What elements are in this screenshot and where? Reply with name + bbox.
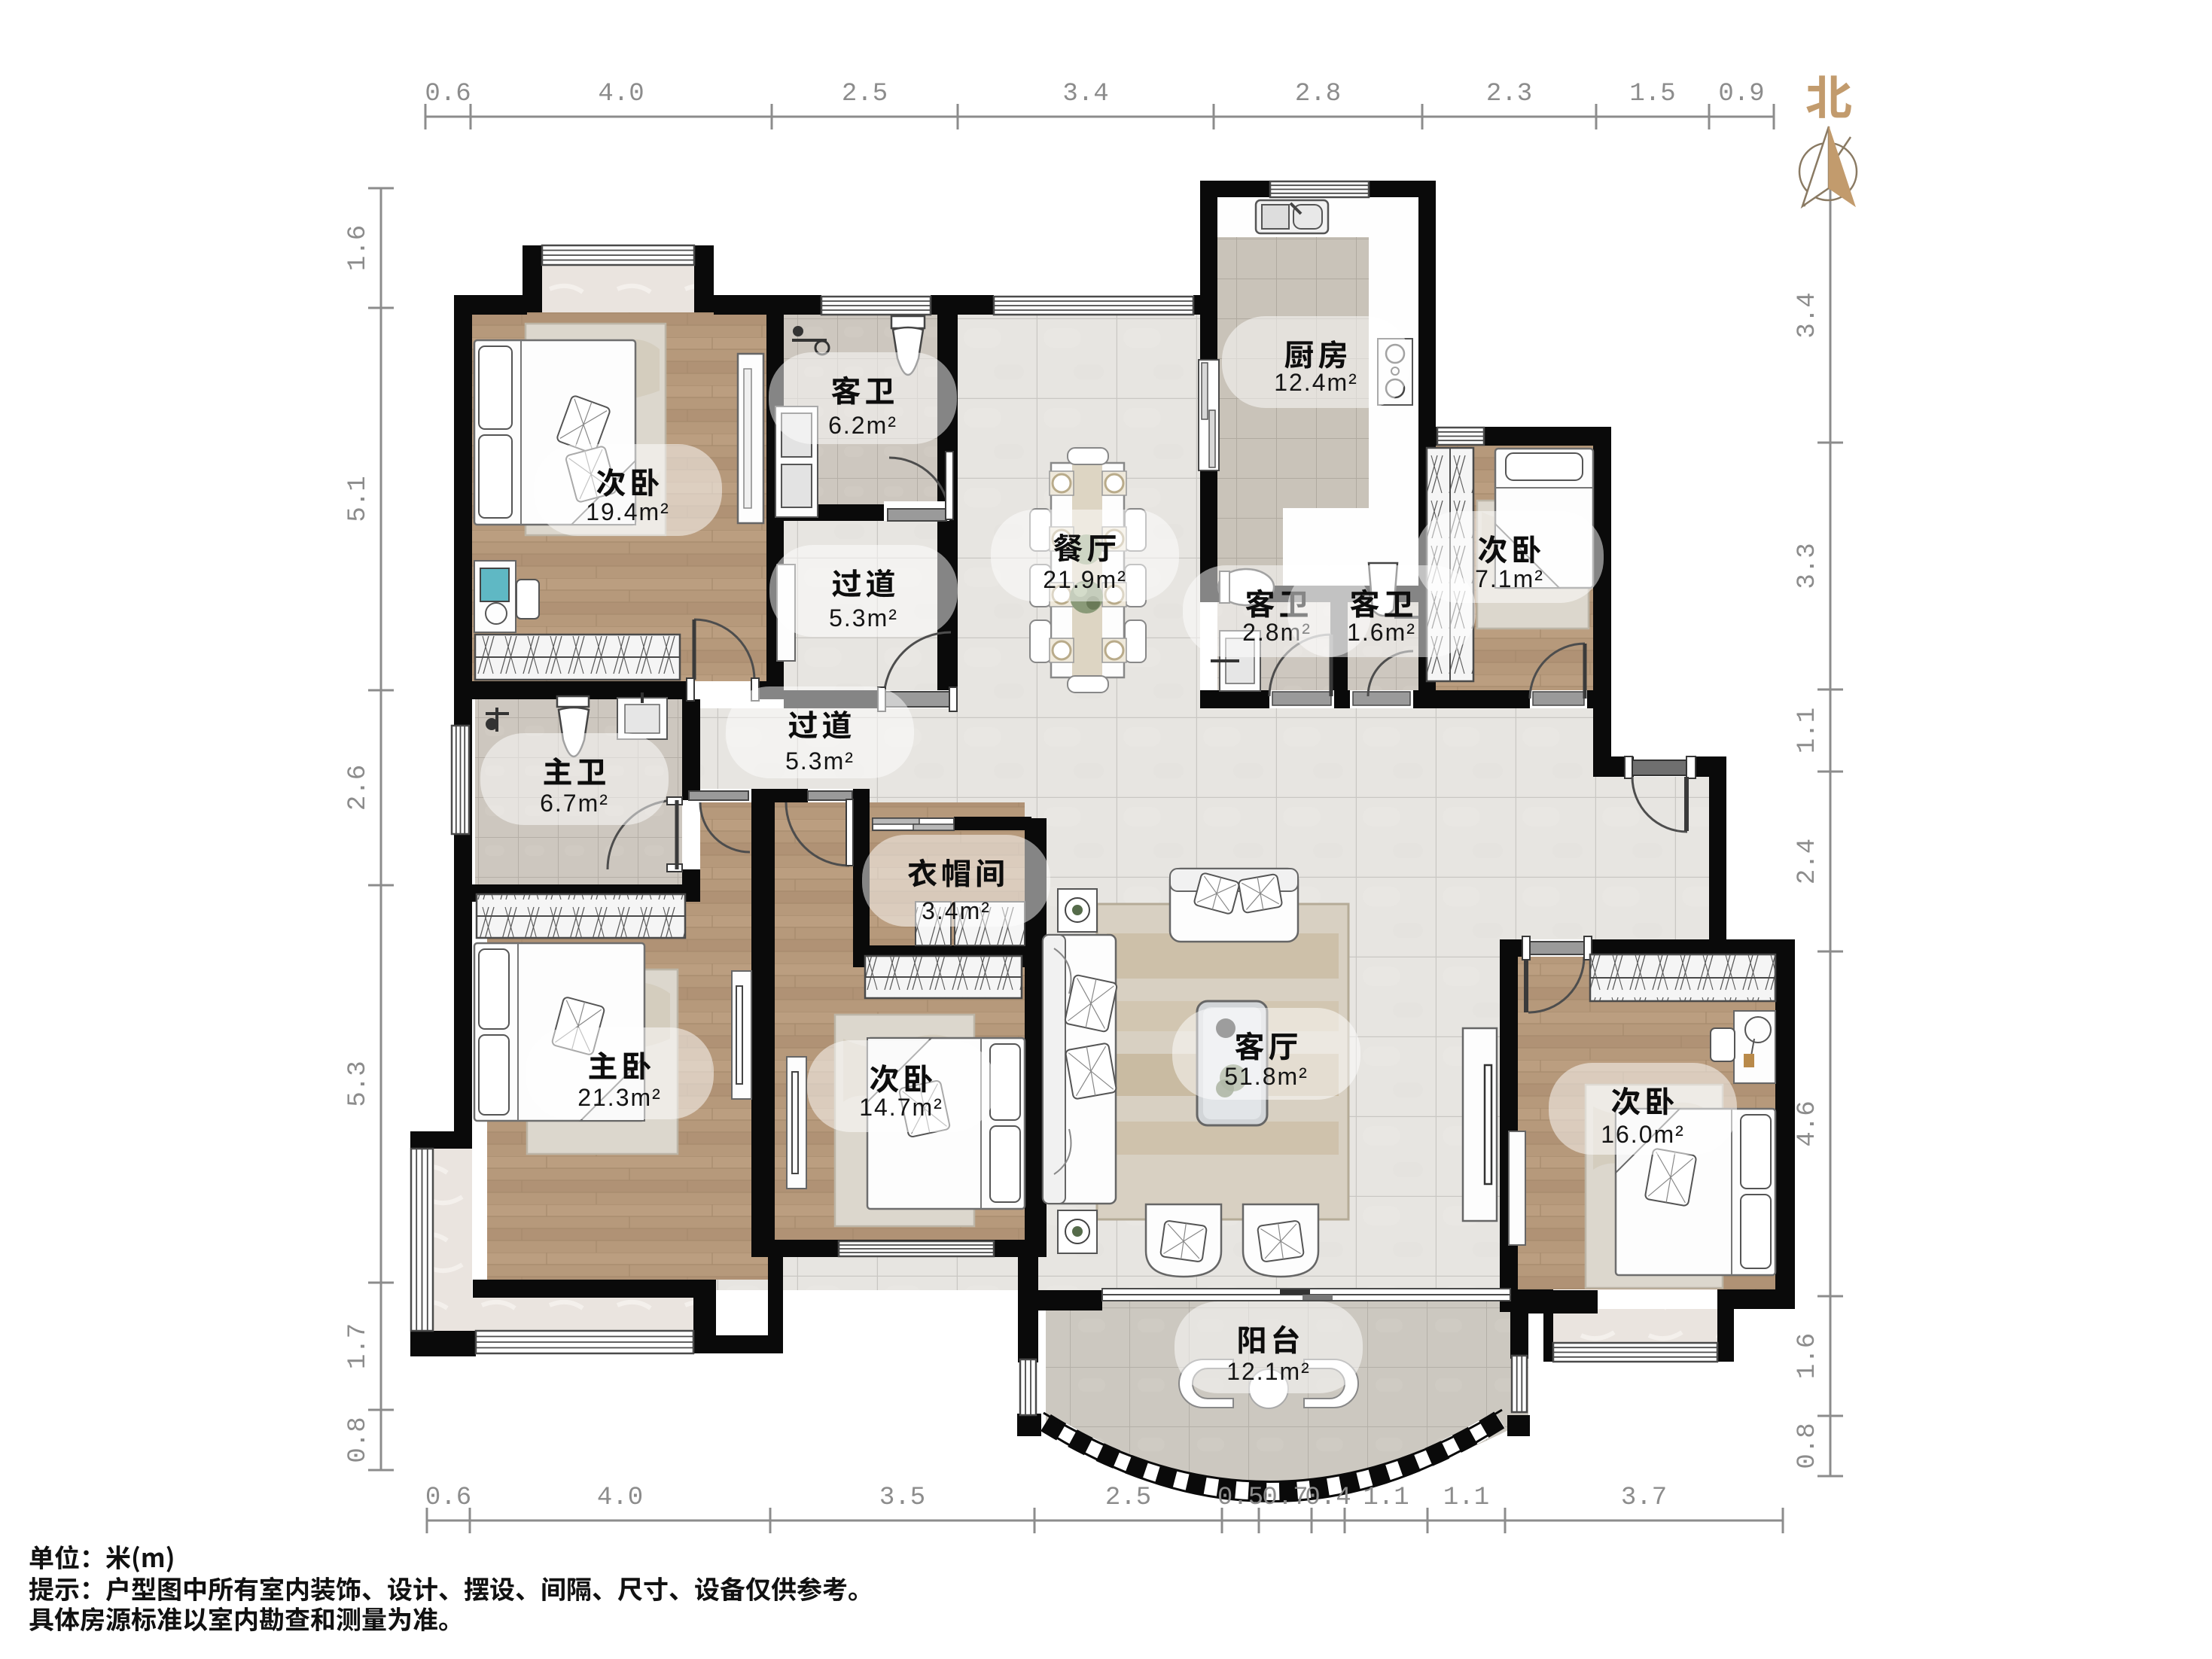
svg-text:19.4m²: 19.4m² <box>586 498 670 525</box>
svg-text:12.4m²: 12.4m² <box>1274 369 1358 396</box>
svg-text:1.1: 1.1 <box>1363 1484 1409 1512</box>
svg-text:14.7m²: 14.7m² <box>859 1094 943 1121</box>
svg-text:12.1m²: 12.1m² <box>1226 1358 1311 1385</box>
svg-text:2.8: 2.8 <box>1295 80 1341 108</box>
svg-text:0.7: 0.7 <box>1262 1484 1308 1512</box>
svg-text:51.8m²: 51.8m² <box>1224 1063 1309 1090</box>
svg-text:2.4: 2.4 <box>1793 839 1822 884</box>
svg-text:6.2m²: 6.2m² <box>828 412 897 439</box>
svg-text:0.5: 0.5 <box>1217 1484 1263 1512</box>
svg-text:7.1m²: 7.1m² <box>1475 565 1544 592</box>
svg-text:0.6: 0.6 <box>425 1484 471 1512</box>
svg-text:5.3m²: 5.3m² <box>785 747 855 775</box>
svg-text:0.8: 0.8 <box>344 1417 373 1463</box>
svg-text:3.4: 3.4 <box>1793 292 1822 338</box>
svg-text:6.7m²: 6.7m² <box>540 790 609 817</box>
svg-text:0.4: 0.4 <box>1305 1484 1351 1512</box>
svg-text:5.3m²: 5.3m² <box>829 604 898 632</box>
svg-text:5.3: 5.3 <box>344 1061 373 1107</box>
svg-text:3.4: 3.4 <box>1062 80 1108 108</box>
svg-text:21.9m²: 21.9m² <box>1043 566 1127 593</box>
svg-text:3.4m²: 3.4m² <box>922 897 991 924</box>
svg-text:1.1: 1.1 <box>1793 708 1822 753</box>
svg-text:3.5: 3.5 <box>879 1484 925 1512</box>
svg-text:2.5: 2.5 <box>1105 1484 1151 1512</box>
svg-text:4.6: 4.6 <box>1793 1100 1822 1146</box>
svg-text:0.6: 0.6 <box>425 80 471 108</box>
svg-text:3.7: 3.7 <box>1621 1484 1667 1512</box>
svg-text:5.1: 5.1 <box>344 476 373 522</box>
svg-text:4.0: 4.0 <box>598 80 644 108</box>
svg-text:0.9: 0.9 <box>1718 80 1764 108</box>
svg-text:1.6m²: 1.6m² <box>1347 619 1416 646</box>
svg-text:4.0: 4.0 <box>597 1484 643 1512</box>
svg-text:2.3: 2.3 <box>1486 80 1532 108</box>
svg-text:21.3m²: 21.3m² <box>577 1084 662 1111</box>
svg-text:16.0m²: 16.0m² <box>1601 1121 1685 1148</box>
svg-text:3.3: 3.3 <box>1793 543 1822 589</box>
svg-text:0.8: 0.8 <box>1793 1423 1822 1469</box>
svg-text:1.7: 1.7 <box>344 1323 373 1369</box>
svg-text:1.6: 1.6 <box>1793 1333 1822 1379</box>
svg-text:1.5: 1.5 <box>1629 80 1675 108</box>
svg-text:1.1: 1.1 <box>1443 1484 1489 1512</box>
svg-text:1.6: 1.6 <box>344 225 373 271</box>
svg-text:2.6: 2.6 <box>344 765 373 811</box>
svg-text:2.5: 2.5 <box>842 80 888 108</box>
